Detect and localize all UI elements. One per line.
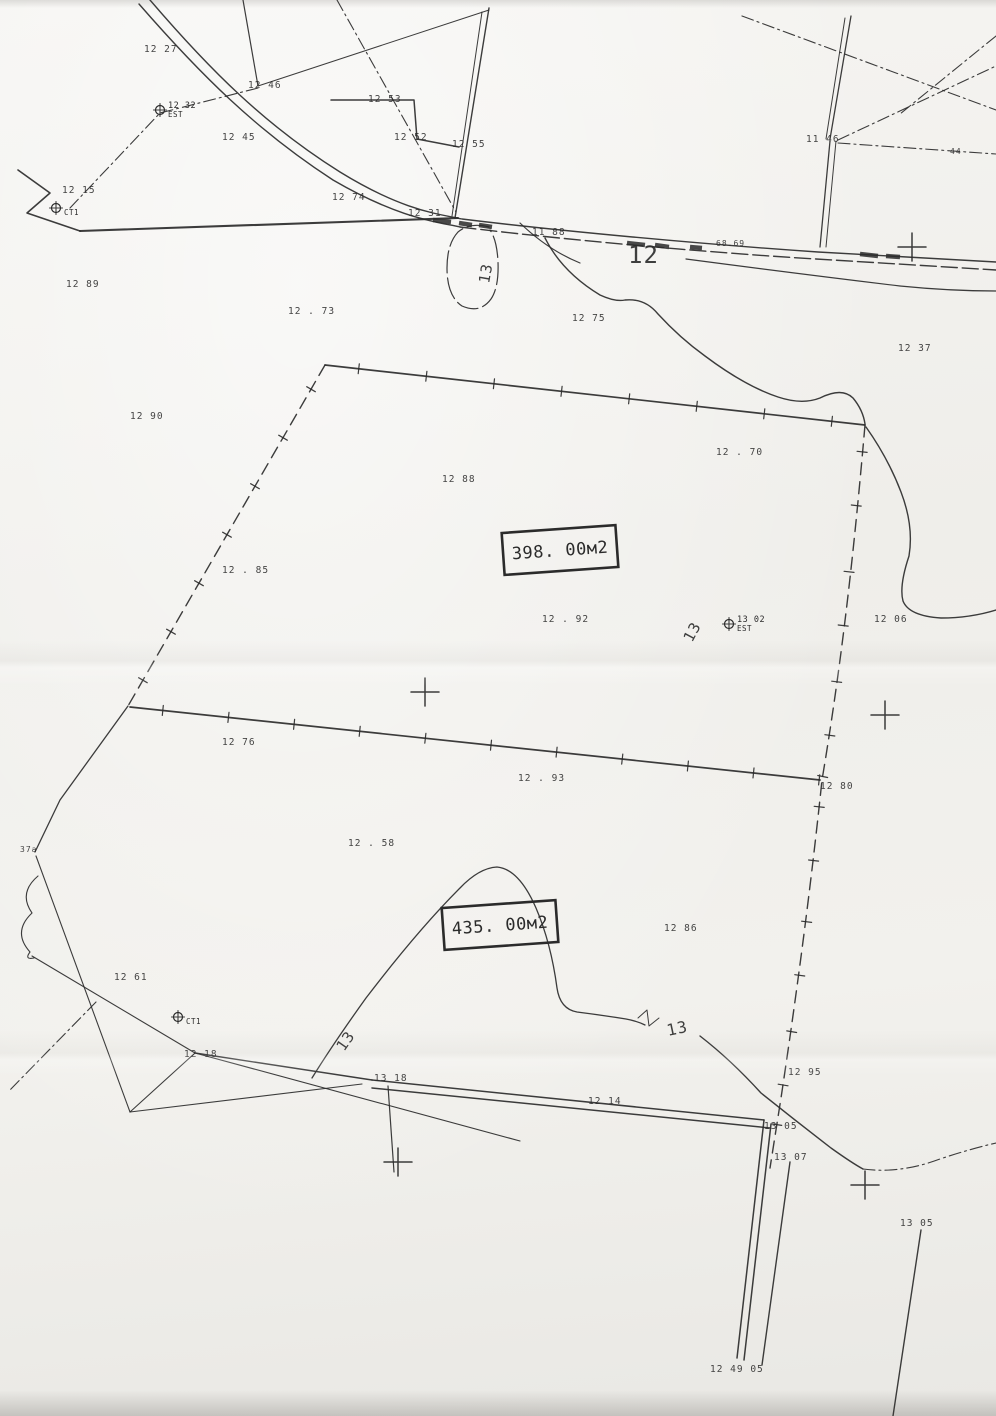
spot-elevation-label: 12 06 [874,614,908,625]
contour-12 [686,259,996,291]
spot-elevation-label: 12 52 [394,132,428,143]
contour-label: 13 [665,1017,690,1040]
fan-dashdot [70,88,258,208]
registration-cross [384,1148,412,1176]
parcel-boundary-top [325,365,865,425]
spot-elevation-label: 12 49 05 [710,1364,764,1375]
station-cross-icon [50,202,63,215]
registration-cross [871,701,899,729]
survey-station-marker: 12 32EST [154,101,197,119]
spot-elevation-label: 12 89 [66,279,100,290]
road-edge [737,1120,764,1358]
survey-station-marker: 13 02EST [723,615,766,633]
boundary-line [35,706,128,852]
spot-elevation-label: 12 53 [368,94,402,105]
spot-elevation-label: 12 80 [820,781,854,792]
spot-elevation-label: 12 . 70 [716,447,763,458]
station-name-label: CT1 [64,208,79,217]
road-edge-upper [372,1080,764,1120]
spot-elevation-label: 12 46 [248,80,282,91]
spot-elevation-label: 12 . 58 [348,838,395,849]
road-edge-lower [372,1088,770,1128]
contour-13 [700,1036,863,1169]
spot-elevation-label: 12 76 [222,737,256,748]
spot-elevation-label: 13 05 [900,1218,934,1229]
contour-label: 13 [333,1028,359,1055]
fence-line [455,8,489,218]
spot-elevation-label: 12 61 [114,972,148,983]
dashdot-line [838,143,996,154]
spot-elevation-label: 11 46 [806,134,840,145]
station-name-label: EST [168,110,183,119]
dashdot-line [742,16,996,110]
spot-elevation-label: 12 45 [222,132,256,143]
registration-cross [851,1171,879,1199]
contour-label: 13 [475,262,496,285]
spot-elevation-label: 12 37 [898,343,932,354]
spot-elevation-label: 12 27 [144,44,178,55]
boundary-line [762,1162,790,1365]
spot-elevation-label: 12 . 73 [288,306,335,317]
spot-elevation-label: 12 95 [788,1067,822,1078]
survey-line [130,1084,362,1112]
station-cross-icon [723,618,736,631]
spot-elevation-label: 13 07 [774,1152,808,1163]
survey-line [388,1086,394,1172]
registration-cross [411,678,439,706]
fence-line [452,12,482,216]
wall-line [830,16,851,139]
boundary-line [195,1053,372,1080]
stream-line [545,238,865,424]
spot-elevation-label: 12 . 93 [518,773,565,784]
parcel-area-box: 435. 00м2 [442,900,559,950]
wall-line [820,141,830,247]
survey-map: 12 32ESTCT113 02ESTCT1 12 2712 4612 5312… [0,0,996,1416]
station-cross-icon [154,104,167,117]
parcel-boundary-east [770,425,865,1168]
wall-line [826,141,836,247]
spot-elevation-label: 12 . 85 [222,565,269,576]
spot-elevation-label: 12 90 [130,411,164,422]
dashdot-line [8,1002,96,1092]
spot-elevation-label: 37a [20,845,37,854]
spot-elevation-label: 12 18 [184,1049,218,1060]
survey-line [36,856,130,1112]
parcel-area-label: 398. 00м2 [511,538,609,565]
spot-elevation-label: 12 88 [442,474,476,485]
stream-line [866,427,996,618]
spot-elevation-label: 12 15 [62,185,96,196]
station-name-label: CT1 [186,1017,201,1026]
spot-elevation-label: 12 14 [588,1096,622,1107]
contour-13-dashdot [863,1143,996,1170]
road-edge-upper [150,0,996,262]
spot-elevation-label: 12 74 [332,192,366,203]
fan-line [258,10,489,86]
survey-line [130,1053,195,1112]
parcel-area-label: 435. 00м2 [451,913,549,940]
dashdot-line [900,36,996,114]
spot-elevation-label: 13 05 [764,1121,798,1132]
wall-line [826,18,845,139]
map-linework [8,0,996,1416]
boundary-line [893,1230,921,1416]
spot-elevation-label: 12 86 [664,923,698,934]
station-name-label: EST [737,624,752,633]
scanned-survey-sheet: 12 32ESTCT113 02ESTCT1 12 2712 4612 5312… [0,0,996,1416]
spot-elevation-label: 13 18 [374,1073,408,1084]
road-edge-lower [139,4,460,227]
contour-label: 12 [628,241,659,269]
spot-elevation-label: 12 75 [572,313,606,324]
spot-elevation-label: 44 [950,147,962,156]
road-hatch [433,220,900,257]
survey-line [32,956,520,1141]
boundary-thick [80,218,458,231]
spot-elevation-label: 12 31 [408,208,442,219]
station-cross-icon [172,1011,185,1024]
fan-line [243,0,258,86]
dashdot-line [838,66,996,140]
spot-elevation-label: 11 88 [532,227,566,238]
parcel-area-box: 398. 00м2 [502,525,619,575]
spot-elevation-label: 12 55 [452,139,486,150]
contour-13 [312,867,645,1078]
terrain-wiggle [21,876,38,958]
edge-zigzag [18,170,80,231]
contour-label: 13 [680,619,705,645]
spot-elevation-label: 68.69 [716,239,745,248]
spot-elevation-label: 12 . 92 [542,614,589,625]
survey-station-marker: CT1 [172,1011,202,1027]
